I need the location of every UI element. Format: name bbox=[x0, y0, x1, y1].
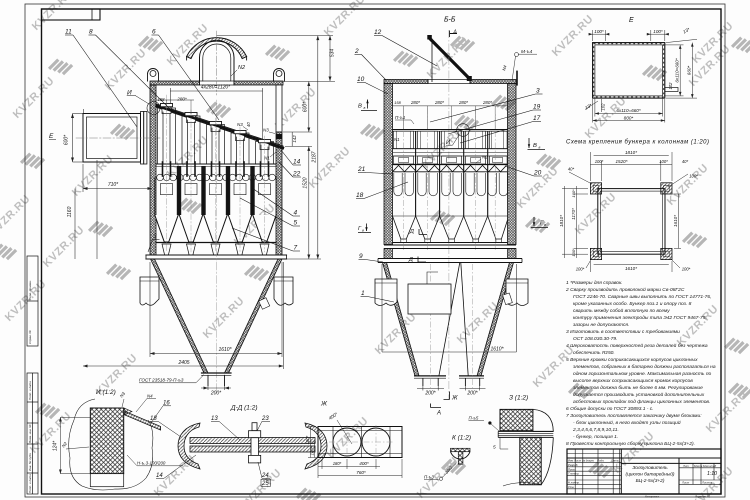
svg-text:одном горизонтальном уровне. М: одном горизонтальном уровне. Максимальна… bbox=[573, 371, 712, 377]
svg-text:800*: 800* bbox=[624, 115, 634, 120]
svg-text:асбестовых прокладок под флан: асбестовых прокладок под фланцы циклонны… bbox=[573, 399, 710, 405]
svg-text:Б-Б: Б-Б bbox=[444, 17, 456, 24]
svg-text:З (1:2): З (1:2) bbox=[509, 395, 528, 402]
svg-text:18: 18 bbox=[356, 192, 364, 199]
svg-text:1: 1 bbox=[361, 290, 365, 297]
svg-text:600*: 600* bbox=[303, 101, 309, 112]
svg-text:Взам. инв. №: Взам. инв. № bbox=[28, 424, 32, 443]
svg-text:Листов: Листов bbox=[701, 480, 713, 484]
svg-text:7: 7 bbox=[294, 245, 298, 252]
svg-text:А: А bbox=[436, 411, 441, 417]
svg-text:ГОСТ 23518-79-П-ъ3: ГОСТ 23518-79-П-ъ3 bbox=[139, 378, 184, 383]
svg-text:100*: 100* bbox=[653, 29, 663, 34]
svg-text:N1: N1 bbox=[394, 137, 400, 142]
svg-text:Пров.: Пров. bbox=[568, 467, 576, 471]
svg-text:Н-ъ.3-100/200: Н-ъ.3-100/200 bbox=[137, 461, 166, 466]
svg-text:Подп.: Подп. bbox=[597, 459, 605, 463]
svg-text:ОСТ 108.030.30-79.: ОСТ 108.030.30-79. bbox=[573, 336, 617, 342]
svg-text:7 Золоуловитель поставляется з: 7 Золоуловитель поставляется заказчику д… bbox=[566, 413, 702, 419]
svg-text:6: 6 bbox=[152, 29, 156, 36]
svg-text:4: 4 bbox=[294, 210, 298, 217]
svg-text:660*: 660* bbox=[687, 66, 692, 76]
svg-text:N1: N1 bbox=[264, 156, 270, 161]
svg-text:Утв.: Утв. bbox=[568, 485, 575, 489]
svg-text:1520: 1520 bbox=[303, 177, 309, 188]
svg-text:N2: N2 bbox=[238, 65, 245, 71]
svg-text:100*: 100* bbox=[594, 29, 604, 34]
svg-text:1610*: 1610* bbox=[218, 347, 232, 353]
svg-text:100*: 100* bbox=[682, 267, 691, 272]
svg-text:280*: 280* bbox=[410, 100, 420, 105]
svg-text:4x280=1120*: 4x280=1120* bbox=[201, 85, 231, 91]
svg-text:Д: Д bbox=[408, 257, 413, 263]
svg-text:22: 22 bbox=[292, 171, 301, 178]
svg-text:280*: 280* bbox=[482, 100, 492, 105]
svg-text:11: 11 bbox=[65, 29, 72, 36]
svg-text:Инв. № дубл.: Инв. № дубл. bbox=[28, 452, 32, 471]
svg-text:280*: 280* bbox=[458, 100, 468, 105]
svg-text:Копировал: Копировал bbox=[645, 495, 659, 499]
svg-text:6 Общие допуски по ГОСТ 30893.: 6 Общие допуски по ГОСТ 30893.1 - с. bbox=[566, 406, 654, 412]
svg-text:П-ъ1: П-ъ1 bbox=[395, 115, 406, 120]
svg-text:1810*: 1810* bbox=[625, 150, 637, 155]
svg-text:10: 10 bbox=[357, 76, 365, 83]
svg-text:в: в bbox=[544, 223, 546, 227]
svg-text:(циклон батарейный): (циклон батарейный) bbox=[625, 471, 674, 478]
svg-text:Д: Д bbox=[409, 229, 414, 235]
svg-text:Схема крепления бункера к коло: Схема крепления бункера к колоннам (1:20… bbox=[566, 140, 709, 146]
svg-text:допускается производить устано: допускается производить установкой допол… bbox=[573, 391, 705, 398]
svg-text:N4: N4 bbox=[147, 394, 153, 399]
svg-text:элементов должна быть не более: элементов должна быть не более 6 мм. Рег… bbox=[573, 385, 703, 391]
svg-text:N3: N3 bbox=[263, 128, 269, 133]
svg-text:К (1:2): К (1:2) bbox=[452, 435, 471, 442]
svg-text:400*: 400* bbox=[359, 461, 369, 466]
svg-text:102: 102 bbox=[601, 103, 606, 111]
svg-text:2,3,4,5,6,7,8,9,10,11.: 2,3,4,5,6,7,8,9,10,11. bbox=[572, 427, 619, 433]
svg-text:160*: 160* bbox=[571, 189, 576, 198]
svg-text:1810*: 1810* bbox=[559, 215, 564, 227]
svg-text:Дата: Дата bbox=[610, 459, 619, 463]
svg-text:158: 158 bbox=[394, 100, 401, 105]
svg-text:Ж: Ж bbox=[451, 396, 458, 402]
svg-text:100*: 100* bbox=[571, 248, 576, 257]
svg-text:40*: 40* bbox=[568, 167, 575, 172]
svg-text:Д-Д (1:2): Д-Д (1:2) bbox=[230, 405, 258, 412]
svg-text:160*: 160* bbox=[305, 435, 310, 444]
svg-text:600*: 600* bbox=[64, 134, 70, 145]
svg-text:5: 5 bbox=[294, 220, 298, 227]
svg-text:Формат А1: Формат А1 bbox=[695, 495, 711, 499]
svg-text:3: 3 bbox=[536, 88, 540, 95]
svg-text:124*: 124* bbox=[53, 440, 59, 451]
svg-text:N3: N3 bbox=[237, 122, 243, 127]
svg-text:280*: 280* bbox=[434, 100, 444, 105]
svg-text:180*: 180* bbox=[333, 461, 342, 466]
svg-text:зазоры не допускаются.: зазоры не допускаются. bbox=[572, 322, 629, 328]
svg-text:2187: 2187 bbox=[312, 151, 318, 163]
svg-text:14: 14 bbox=[293, 159, 301, 166]
svg-text:534: 534 bbox=[330, 49, 336, 58]
svg-text:П-ъ3: П-ъ3 bbox=[424, 475, 434, 480]
svg-text:в: в bbox=[539, 146, 541, 150]
svg-text:6х110=660*: 6х110=660* bbox=[616, 108, 641, 113]
svg-text:142: 142 bbox=[292, 135, 297, 143]
svg-text:102: 102 bbox=[668, 82, 673, 90]
svg-text:180*: 180* bbox=[309, 446, 314, 455]
svg-text:40: 40 bbox=[246, 122, 251, 127]
svg-text:3: 3 bbox=[153, 233, 157, 240]
svg-text:200*: 200* bbox=[210, 391, 222, 397]
svg-text:БЦ-2-5х(3+2): БЦ-2-5х(3+2) bbox=[636, 478, 665, 484]
svg-text:1520*: 1520* bbox=[615, 159, 627, 164]
svg-text:И (1:2): И (1:2) bbox=[96, 389, 116, 396]
svg-text:Е: Е bbox=[629, 17, 634, 24]
svg-text:В: В bbox=[533, 143, 537, 149]
svg-text:Подп. и дата: Подп. и дата bbox=[28, 474, 32, 493]
svg-text:1 *Размеры для справок.: 1 *Размеры для справок. bbox=[566, 280, 623, 286]
svg-text:8 Провести контрольную сборку: 8 Провести контрольную сборку циклона БЦ… bbox=[566, 441, 695, 447]
svg-text:обеспечить Rz50.: обеспечить Rz50. bbox=[573, 350, 615, 356]
svg-text:6х110=660*: 6х110=660* bbox=[675, 58, 680, 83]
svg-text:1:10: 1:10 bbox=[707, 471, 717, 477]
svg-text:5 Верхние кромки соприкасающих: 5 Верхние кромки соприкасающихся корпусо… bbox=[566, 357, 698, 363]
svg-text:9: 9 bbox=[359, 253, 363, 260]
svg-text:контуру применения электроды т: контуру применения электроды типа Э42 ГО… bbox=[573, 315, 707, 321]
svg-text:19: 19 bbox=[533, 104, 541, 111]
svg-text:Изм Лист: Изм Лист bbox=[568, 459, 582, 463]
svg-text:4 Шероховатость поверхностей р: 4 Шероховатость поверхностей реза детале… bbox=[566, 342, 708, 349]
svg-text:280*: 280* bbox=[176, 97, 187, 102]
svg-text:100*: 100* bbox=[689, 174, 698, 179]
svg-text:710*: 710* bbox=[108, 182, 119, 188]
svg-text:Е: Е bbox=[49, 133, 54, 140]
svg-text:Ж: Ж bbox=[320, 401, 328, 408]
svg-text:1170*: 1170* bbox=[571, 208, 576, 220]
svg-text:- блок циклонный, в него входя: - блок циклонный, в него входят узлы поз… bbox=[573, 419, 681, 426]
svg-text:21: 21 bbox=[357, 166, 366, 173]
svg-text:В: В bbox=[358, 104, 362, 110]
svg-text:Справ. №: Справ. № bbox=[28, 330, 32, 344]
svg-text:40*: 40* bbox=[682, 159, 689, 164]
svg-text:12: 12 bbox=[374, 29, 382, 36]
svg-text:1160: 1160 bbox=[67, 206, 73, 217]
svg-text:ГОСТ 2246-70. Сварные швы выпо: ГОСТ 2246-70. Сварные швы выполнить по Г… bbox=[573, 294, 711, 300]
svg-text:Масштаб: Масштаб bbox=[703, 464, 716, 468]
svg-text:5: 5 bbox=[493, 445, 496, 451]
svg-text:сварить между собой вплотную п: сварить между собой вплотную по всему bbox=[573, 307, 670, 314]
svg-text:100*: 100* bbox=[659, 159, 668, 164]
svg-text:760*: 760* bbox=[356, 470, 366, 475]
svg-text:8: 8 bbox=[89, 29, 93, 36]
svg-text:1610*: 1610* bbox=[673, 215, 678, 227]
svg-text:Т.контр.: Т.контр. bbox=[568, 472, 580, 476]
svg-text:100*: 100* bbox=[595, 159, 604, 164]
svg-text:элементов, собранных в батарею: элементов, собранных в батарею должны ра… bbox=[573, 364, 716, 370]
svg-text:20: 20 bbox=[533, 170, 542, 177]
svg-text:3 Изготовить в соответствии с: 3 Изготовить в соответствии с требования… bbox=[566, 329, 680, 335]
svg-text:1610*: 1610* bbox=[625, 266, 637, 271]
svg-text:2 Сварку производить проволоко: 2 Сварку производить проволокой марки Св… bbox=[565, 286, 685, 293]
svg-text:высоте верхних соприкасающихся: высоте верхних соприкасающихся кромок ко… bbox=[573, 379, 693, 384]
svg-text:Перв. примен.: Перв. примен. bbox=[28, 280, 32, 300]
svg-text:1610*: 1610* bbox=[490, 347, 504, 353]
svg-text:№ докум.: № докум. bbox=[582, 459, 595, 463]
svg-text:- бункер, позиция 1.: - бункер, позиция 1. bbox=[573, 434, 618, 440]
svg-text:2: 2 bbox=[354, 48, 359, 55]
svg-text:Масса: Масса bbox=[694, 464, 703, 468]
svg-text:Подп. и дата: Подп. и дата bbox=[28, 381, 32, 400]
svg-text:2405: 2405 bbox=[177, 360, 189, 366]
svg-text:А: А bbox=[452, 30, 457, 36]
svg-text:17: 17 bbox=[533, 115, 541, 122]
svg-text:П-ъ5: П-ъ5 bbox=[469, 416, 479, 421]
svg-text:Лист: Лист bbox=[681, 480, 690, 484]
svg-text:в: в bbox=[364, 106, 366, 110]
svg-text:Золоуловитель: Золоуловитель bbox=[632, 465, 668, 471]
svg-text:100*: 100* bbox=[576, 267, 585, 272]
svg-text:в: в bbox=[362, 229, 364, 233]
svg-text:кроме указанных особо. Бункер: кроме указанных особо. Бункер поз.1 и оп… bbox=[573, 301, 692, 307]
svg-text:Лит.: Лит. bbox=[682, 464, 690, 468]
